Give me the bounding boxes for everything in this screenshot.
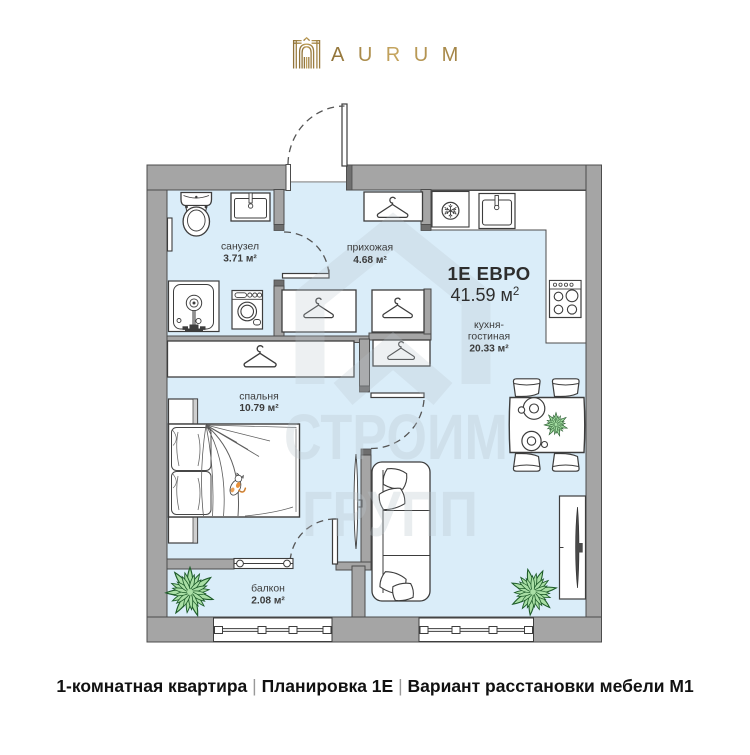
svg-text:3.71 м²: 3.71 м²: [223, 253, 257, 264]
svg-text:20.33 м²: 20.33 м²: [469, 344, 509, 355]
svg-text:4.68 м²: 4.68 м²: [353, 255, 387, 266]
svg-text:41.59 м2: 41.59 м2: [451, 285, 520, 305]
svg-text:кухня-: кухня-: [474, 320, 504, 331]
svg-text:гостиная: гостиная: [468, 332, 510, 343]
svg-text:2.08 м²: 2.08 м²: [251, 596, 285, 607]
svg-text:спальня: спальня: [239, 391, 278, 402]
svg-text:1-комнатная квартира | Планиро: 1-комнатная квартира | Планировка 1Е | В…: [56, 676, 694, 696]
svg-text:СТРОИМ: СТРОИМ: [284, 401, 508, 473]
svg-text:AURUM: AURUM: [331, 44, 472, 66]
svg-text:санузел: санузел: [221, 241, 259, 252]
svg-text:прихожая: прихожая: [347, 243, 393, 254]
svg-text:балкон: балкон: [251, 583, 285, 595]
svg-text:1Е ЕВРО: 1Е ЕВРО: [448, 263, 531, 284]
svg-text:10.79 м²: 10.79 м²: [239, 403, 279, 414]
svg-text:ГРУПП: ГРУПП: [302, 478, 478, 550]
